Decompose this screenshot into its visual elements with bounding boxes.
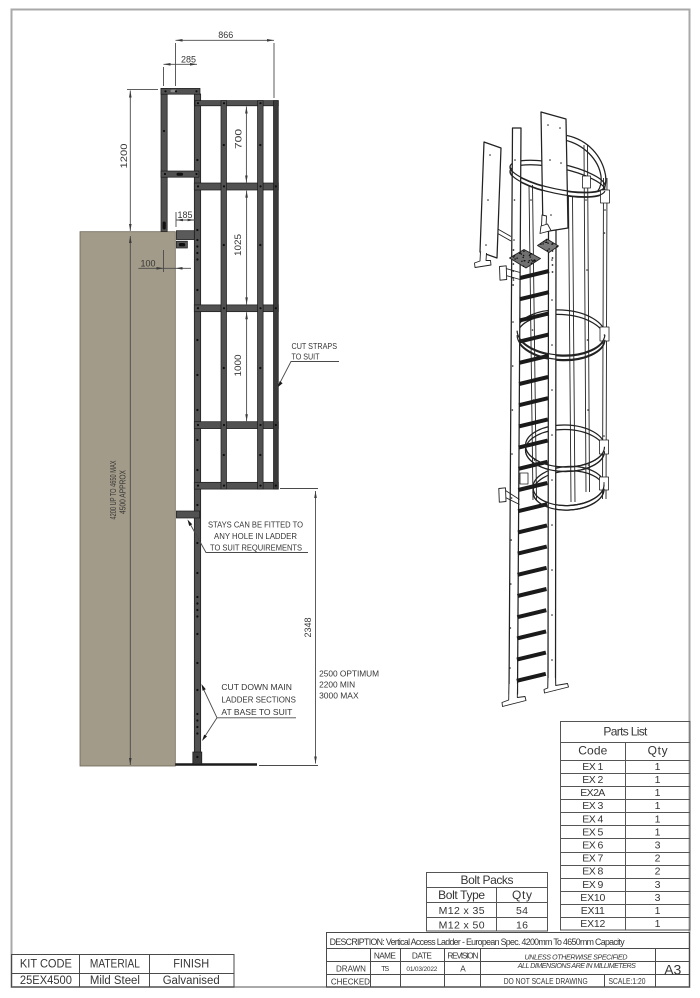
svg-text:1025: 1025 bbox=[233, 234, 243, 256]
svg-text:M12 x 35: M12 x 35 bbox=[439, 905, 485, 917]
svg-text:1: 1 bbox=[655, 918, 661, 930]
svg-text:CHECKED: CHECKED bbox=[331, 978, 370, 987]
svg-text:EX 7: EX 7 bbox=[582, 853, 603, 865]
svg-text:100: 100 bbox=[141, 258, 156, 268]
svg-text:54: 54 bbox=[516, 905, 528, 917]
svg-text:TS: TS bbox=[381, 966, 389, 973]
svg-text:DO NOT SCALE DRAWING: DO NOT SCALE DRAWING bbox=[504, 977, 588, 986]
svg-text:4200 UP TO 4650 MAX: 4200 UP TO 4650 MAX bbox=[109, 460, 118, 519]
svg-text:1200: 1200 bbox=[119, 144, 129, 169]
svg-text:EX 1: EX 1 bbox=[582, 761, 603, 773]
svg-text:EX 6: EX 6 bbox=[582, 840, 603, 852]
svg-text:3: 3 bbox=[655, 840, 661, 852]
svg-text:1: 1 bbox=[655, 800, 661, 812]
svg-text:4500 APPROX: 4500 APPROX bbox=[118, 470, 127, 514]
svg-text:1000: 1000 bbox=[233, 355, 243, 377]
svg-text:3000 MAX: 3000 MAX bbox=[319, 692, 359, 701]
svg-text:1: 1 bbox=[655, 905, 661, 917]
svg-text:Galvanised: Galvanised bbox=[163, 975, 220, 987]
svg-text:Bolt Type: Bolt Type bbox=[438, 888, 485, 902]
svg-text:EX2A: EX2A bbox=[580, 787, 605, 799]
svg-text:700: 700 bbox=[234, 129, 244, 149]
svg-text:2200 MIN: 2200 MIN bbox=[319, 681, 355, 690]
svg-text:CUT DOWN MAIN: CUT DOWN MAIN bbox=[221, 683, 292, 692]
svg-text:2348: 2348 bbox=[303, 618, 313, 638]
svg-text:16: 16 bbox=[516, 919, 528, 931]
svg-text:EX 2: EX 2 bbox=[582, 774, 603, 786]
svg-text:EX 4: EX 4 bbox=[582, 813, 603, 825]
svg-text:UNLESS OTHERWISE SPECIFIED: UNLESS OTHERWISE SPECIFIED bbox=[525, 954, 628, 962]
svg-text:A3: A3 bbox=[664, 962, 681, 978]
svg-text:285: 285 bbox=[181, 54, 196, 64]
svg-text:LADDER SECTIONS: LADDER SECTIONS bbox=[221, 696, 296, 705]
svg-text:NAME: NAME bbox=[374, 952, 397, 961]
svg-text:Mild Steel: Mild Steel bbox=[90, 975, 140, 987]
svg-text:TO SUIT: TO SUIT bbox=[292, 353, 320, 362]
svg-text:ALL DIMENSIONS ARE IN MILLIMET: ALL DIMENSIONS ARE IN MILLIMETERS bbox=[517, 962, 636, 970]
svg-text:ANY HOLE IN LADDER: ANY HOLE IN LADDER bbox=[214, 532, 297, 541]
svg-text:1: 1 bbox=[655, 813, 661, 825]
svg-text:Bolt Packs: Bolt Packs bbox=[461, 873, 514, 887]
svg-text:Parts List: Parts List bbox=[603, 725, 648, 739]
svg-text:3: 3 bbox=[655, 879, 661, 891]
svg-text:AT BASE TO SUIT: AT BASE TO SUIT bbox=[221, 708, 292, 717]
svg-text:1: 1 bbox=[655, 761, 661, 773]
svg-text:3: 3 bbox=[655, 892, 661, 904]
svg-text:185: 185 bbox=[178, 210, 193, 220]
svg-text:EX 5: EX 5 bbox=[582, 826, 603, 838]
svg-text:TO SUIT REQUIREMENTS: TO SUIT REQUIREMENTS bbox=[210, 544, 302, 553]
svg-text:EX12: EX12 bbox=[580, 918, 605, 930]
svg-text:01/03/2022: 01/03/2022 bbox=[406, 966, 437, 973]
svg-text:REVISION: REVISION bbox=[447, 952, 478, 961]
svg-text:CUT STRAPS: CUT STRAPS bbox=[292, 342, 338, 351]
svg-text:EX 3: EX 3 bbox=[582, 800, 603, 812]
svg-text:2: 2 bbox=[655, 853, 661, 865]
svg-text:FINISH: FINISH bbox=[173, 959, 209, 971]
svg-text:M12 x 50: M12 x 50 bbox=[439, 919, 485, 931]
svg-text:KIT CODE: KIT CODE bbox=[20, 959, 72, 971]
svg-text:Qty: Qty bbox=[512, 888, 532, 902]
svg-text:EX 9: EX 9 bbox=[582, 879, 603, 891]
svg-text:DATE: DATE bbox=[412, 952, 433, 961]
svg-text:2: 2 bbox=[655, 866, 661, 878]
svg-text:866: 866 bbox=[218, 30, 233, 40]
svg-text:25EX4500: 25EX4500 bbox=[20, 975, 72, 987]
svg-text:STAYS CAN BE FITTED TO: STAYS CAN BE FITTED TO bbox=[208, 521, 303, 530]
svg-text:EX11: EX11 bbox=[581, 905, 605, 917]
svg-text:EX10: EX10 bbox=[580, 892, 605, 904]
svg-text:SCALE:1:20: SCALE:1:20 bbox=[609, 977, 646, 986]
svg-text:DESCRIPTION: Vertical Access: DESCRIPTION: Vertical Access Ladder - Eu… bbox=[330, 937, 626, 947]
svg-text:DRAWN: DRAWN bbox=[336, 965, 366, 974]
svg-text:1: 1 bbox=[655, 826, 661, 838]
svg-text:A: A bbox=[460, 965, 466, 974]
svg-text:Qty: Qty bbox=[648, 744, 668, 758]
svg-text:2500 OPTIMUM: 2500 OPTIMUM bbox=[319, 670, 379, 679]
svg-text:Code: Code bbox=[578, 744, 607, 758]
svg-text:EX 8: EX 8 bbox=[582, 866, 603, 878]
svg-text:1: 1 bbox=[655, 774, 661, 786]
svg-text:MATERIAL: MATERIAL bbox=[90, 959, 141, 971]
svg-text:1: 1 bbox=[655, 787, 661, 799]
